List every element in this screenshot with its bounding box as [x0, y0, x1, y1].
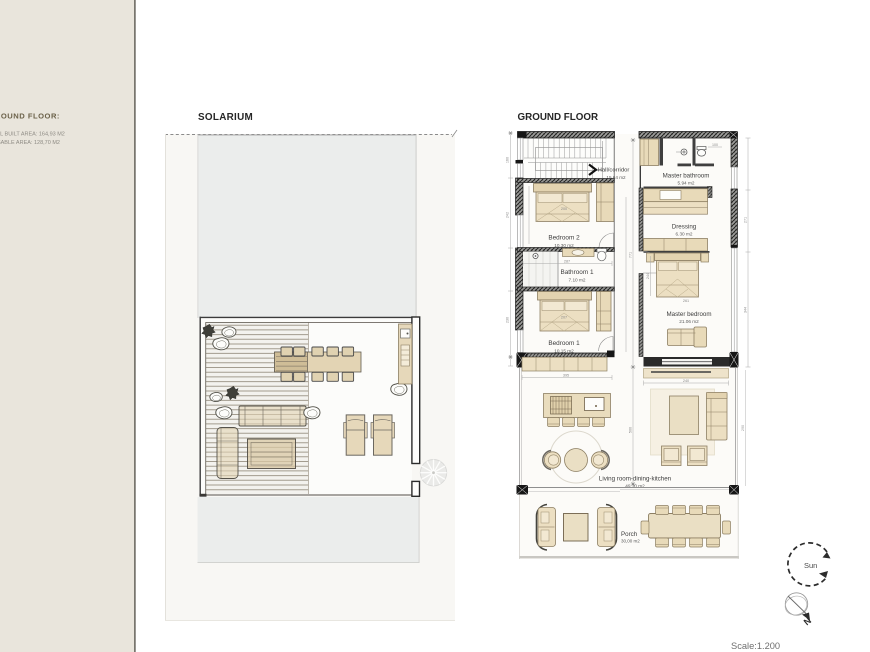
svg-text:Porch: Porch [621, 531, 638, 538]
svg-text:6.30 m2: 6.30 m2 [676, 232, 693, 237]
svg-text:Living room-dining-kitchen: Living room-dining-kitchen [599, 476, 672, 483]
svg-text:GROUND FLOOR: GROUND FLOOR [518, 112, 599, 123]
svg-text:Master bedroom: Master bedroom [666, 311, 711, 318]
svg-text:200: 200 [561, 207, 567, 211]
svg-text:TOTAL BUILT AREA: 164,93 M2: TOTAL BUILT AREA: 164,93 M2 [0, 131, 65, 137]
svg-text:287: 287 [564, 259, 570, 263]
svg-text:Bedroom 1: Bedroom 1 [548, 340, 580, 347]
svg-text:290: 290 [741, 425, 745, 431]
svg-text:5.94 m2: 5.94 m2 [678, 181, 695, 186]
svg-text:21.06 m2: 21.06 m2 [679, 319, 699, 324]
svg-text:500: 500 [629, 427, 633, 433]
svg-text:7.10 m2: 7.10 m2 [569, 278, 586, 283]
svg-text:271: 271 [744, 217, 748, 223]
svg-text:30,00 m2: 30,00 m2 [621, 539, 640, 544]
svg-text:160: 160 [506, 157, 510, 163]
svg-text:395: 395 [563, 373, 569, 377]
svg-text:240: 240 [683, 379, 689, 383]
svg-text:100: 100 [712, 143, 718, 147]
svg-text:Bedroom 2: Bedroom 2 [548, 235, 580, 242]
svg-text:Hall/corridor: Hall/corridor [598, 168, 630, 174]
svg-text:261: 261 [683, 299, 689, 303]
svg-text:Master bathroom: Master bathroom [663, 173, 710, 180]
svg-text:Bathroom 1: Bathroom 1 [560, 269, 593, 276]
svg-text:771: 771 [629, 252, 633, 258]
svg-text:230: 230 [506, 317, 510, 323]
svg-text:SOLARIUM: SOLARIUM [198, 112, 253, 123]
svg-text:344: 344 [744, 307, 748, 313]
svg-text:Sun: Sun [804, 561, 817, 570]
svg-text:244: 244 [646, 273, 650, 279]
svg-text:Scale:1.200: Scale:1.200 [731, 641, 780, 651]
svg-text:242: 242 [506, 212, 510, 218]
svg-text:USABLE AREA: 128,70 M2: USABLE AREA: 128,70 M2 [0, 140, 60, 146]
svg-text:GROUND FLOOR:: GROUND FLOOR: [0, 111, 60, 120]
svg-text:207: 207 [561, 316, 567, 320]
svg-text:Dressing: Dressing [672, 224, 697, 231]
